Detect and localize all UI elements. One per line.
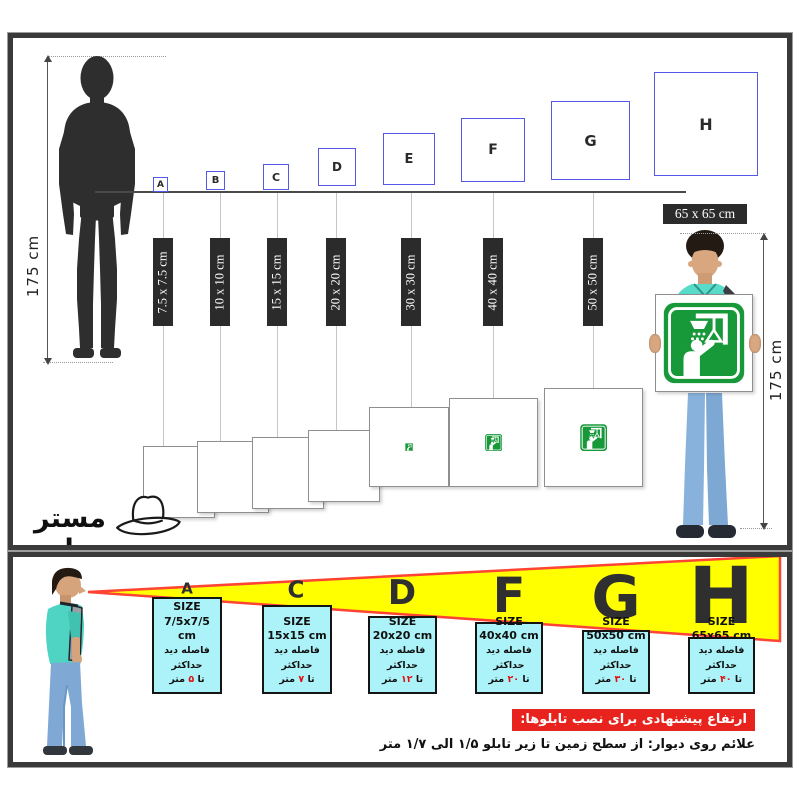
size-tag-text: 30 x 30 cm [404, 254, 419, 310]
upto-word: تا [522, 674, 529, 685]
arrow-down-icon [760, 523, 768, 530]
size-tag-40: 40 x 40 cm [483, 238, 503, 326]
meter-word: متر [169, 674, 185, 685]
comparison-square-a: A [153, 177, 168, 192]
triangle-letter-f: F [493, 572, 526, 620]
size-tag-50: 50 x 50 cm [583, 238, 603, 326]
square-letter: B [212, 175, 220, 186]
size-tag-text: 15 x 15 cm [270, 254, 285, 310]
comparison-square-f: F [461, 118, 525, 182]
man-head-dotted-line [680, 233, 766, 234]
meter-word: متر [279, 674, 295, 685]
distance-value: ۵ [188, 674, 194, 685]
distance-label: فاصله دید حداکثر [154, 644, 220, 673]
comparison-square-g: G [551, 101, 630, 180]
size-tag-text: 20 x 20 cm [329, 254, 344, 310]
poster: 175 cm A B C D E F G H [0, 0, 800, 800]
held-sign-size-tag: 65 x 65 cm [663, 204, 747, 224]
upto-word: تا [197, 674, 204, 685]
size-tag-10: 10 x 10 cm [210, 238, 230, 326]
distance-value: ۴۰ [720, 674, 732, 685]
distance-label: فاصله دید حداکثر [370, 644, 435, 673]
right-height-label: 175 cm [767, 339, 785, 401]
upto-word: تا [629, 674, 636, 685]
distance-line: تا ۵ متر [169, 673, 204, 687]
size-value: 65x65 cm [692, 629, 752, 644]
size-value: 7/5x7/5 cm [154, 615, 220, 645]
size-value: 20x20 cm [373, 629, 433, 644]
size-value: 15x15 cm [267, 629, 327, 644]
left-hand [649, 334, 661, 353]
shower-sign-50 [544, 388, 643, 487]
size-word: SIZE [173, 600, 201, 615]
size-tag-7-5: 7.5 x 7.5 cm [153, 238, 173, 326]
size-tag-20: 20 x 20 cm [326, 238, 346, 326]
shower-sign-40 [449, 398, 538, 487]
comparison-square-c: C [263, 164, 289, 190]
distance-value: ۱۲ [401, 674, 413, 685]
upto-word: تا [735, 674, 742, 685]
square-letter: H [699, 115, 712, 134]
square-letter: A [157, 180, 164, 190]
square-letter: F [488, 142, 498, 158]
distance-label: فاصله دید حداکثر [584, 644, 648, 673]
distance-label: فاصله دید حداکثر [477, 644, 541, 673]
right-hand [749, 334, 761, 353]
meter-word: متر [382, 674, 398, 685]
distance-line: تا ۱۲ متر [382, 673, 423, 687]
hat-icon [111, 491, 185, 541]
viewing-box-c: SIZE 15x15 cm فاصله دید حداکثر تا ۷ متر [262, 605, 332, 694]
brand-logo-text: مستر راد [15, 503, 125, 545]
held-shower-sign-65 [655, 294, 753, 392]
distance-label: فاصله دید حداکثر [264, 644, 330, 673]
left-height-label: 175 cm [24, 235, 42, 297]
distance-line: تا ۴۰ متر [701, 673, 742, 687]
size-value: 40x40 cm [479, 629, 539, 644]
comparison-square-e: E [383, 133, 435, 185]
distance-line: تا ۲۰ متر [488, 673, 529, 687]
size-word: SIZE [495, 615, 523, 630]
size-word: SIZE [708, 615, 736, 630]
upto-word: تا [416, 674, 423, 685]
size-word: SIZE [389, 615, 417, 630]
size-word: SIZE [283, 615, 311, 630]
distance-line: تا ۳۰ متر [595, 673, 636, 687]
distance-label: فاصله دید حداکثر [690, 644, 753, 673]
size-tag-text: 50 x 50 cm [586, 254, 601, 310]
size-tag-30: 30 x 30 cm [401, 238, 421, 326]
right-dimension-line [763, 238, 764, 525]
viewing-box-g: SIZE 50x50 cm فاصله دید حداکثر تا ۳۰ متر [582, 630, 650, 694]
meter-word: متر [595, 674, 611, 685]
meter-word: متر [488, 674, 504, 685]
meter-word: متر [701, 674, 717, 685]
comparison-square-d: D [318, 148, 356, 186]
size-tag-text: 10 x 10 cm [213, 254, 228, 310]
viewing-box-h: SIZE 65x65 cm فاصله دید حداکثر تا ۴۰ متر [688, 637, 755, 694]
human-silhouette [46, 54, 148, 366]
triangle-letter-d: D [388, 576, 416, 610]
bottom-panel: A C D F G H SIZE 7/5x7/5 cm فاصله دید حد… [8, 552, 792, 767]
size-tag-text: 7.5 x 7.5 cm [156, 251, 171, 313]
install-height-banner: ارتفاع پیشنهادی برای نصب تابلوها: [512, 709, 755, 731]
size-value: 50x50 cm [586, 629, 646, 644]
distance-value: ۳۰ [614, 674, 626, 685]
viewing-box-d: SIZE 20x20 cm فاصله دید حداکثر تا ۱۲ متر [368, 616, 437, 694]
reference-line [95, 191, 686, 193]
square-letter: G [584, 132, 596, 150]
upto-word: تا [307, 674, 314, 685]
size-word: SIZE [602, 615, 630, 630]
install-height-note: علائم روی دیوار: از سطح زمین تا زیر تابل… [380, 737, 755, 752]
top-panel: 175 cm A B C D E F G H [8, 33, 792, 550]
viewing-box-f: SIZE 40x40 cm فاصله دید حداکثر تا ۲۰ متر [475, 622, 543, 694]
arrow-up-icon [760, 233, 768, 240]
distance-line: تا ۷ متر [279, 673, 314, 687]
square-letter: D [332, 160, 342, 174]
viewing-box-a: SIZE 7/5x7/5 cm فاصله دید حداکثر تا ۵ مت… [152, 597, 222, 694]
distance-value: ۷ [298, 674, 304, 685]
distance-value: ۲۰ [507, 674, 519, 685]
triangle-letter-c: C [288, 580, 305, 603]
triangle-letter-a: A [181, 582, 193, 597]
comparison-square-b: B [206, 171, 225, 190]
shower-sign-30 [369, 407, 449, 487]
square-letter: C [272, 171, 280, 184]
comparison-square-h: H [654, 72, 758, 176]
size-tag-text: 40 x 40 cm [486, 254, 501, 310]
size-tag-15: 15 x 15 cm [267, 238, 287, 326]
square-letter: E [405, 152, 414, 167]
